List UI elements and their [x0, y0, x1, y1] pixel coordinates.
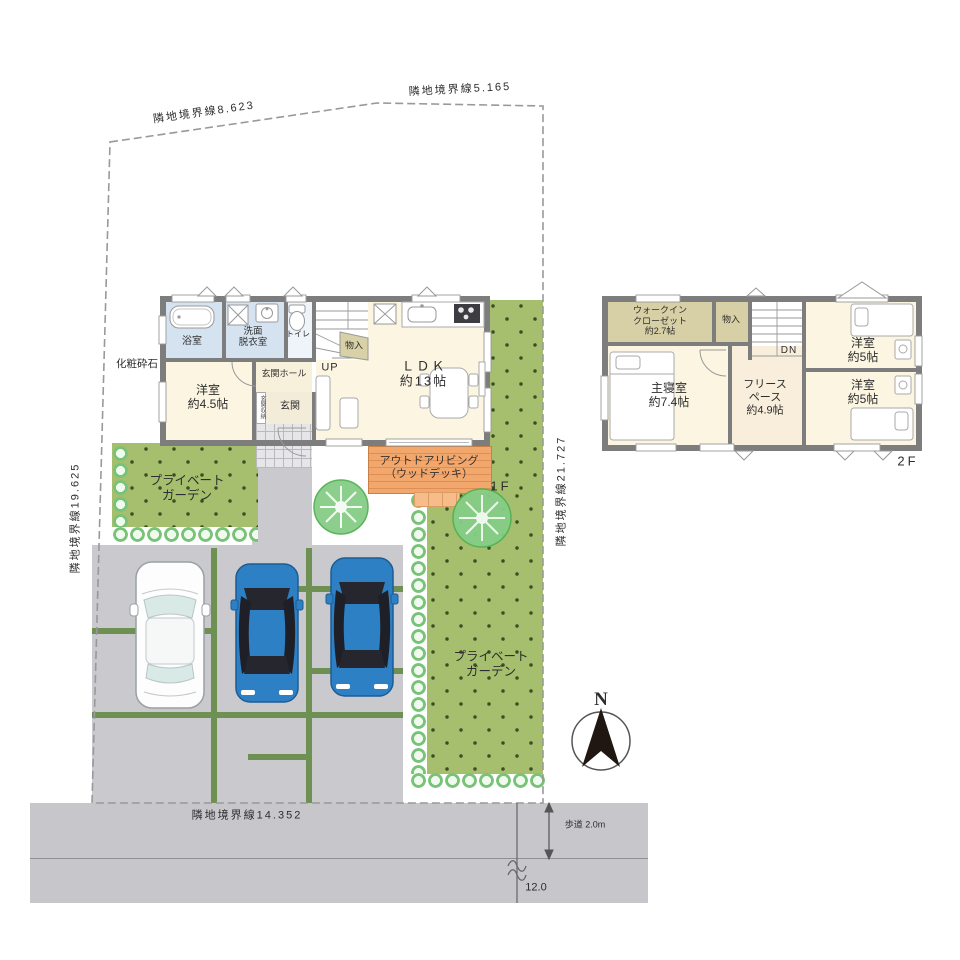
car-white	[130, 562, 210, 708]
north-label: N	[586, 689, 616, 711]
bedroom-bottom-label: 洋室 約5帖	[828, 378, 898, 406]
storage-1f-label: 物入	[339, 341, 369, 352]
boundary-bottom-label: 隣地境界線14.352	[147, 810, 347, 823]
garden-right-label: プライベート ガーデン	[436, 649, 546, 679]
toilet-icon	[289, 305, 305, 331]
entrance-label: 玄関	[270, 401, 310, 413]
free-space-label: フリース ペース 約4.9帖	[730, 379, 800, 418]
garden-left-label: プライベート ガーデン	[132, 473, 242, 503]
sink-icon	[256, 304, 278, 322]
gable-mark-2f	[747, 282, 886, 298]
outdoor-living-label: アウトドアリビング （ウッドデッキ）	[364, 455, 494, 481]
floor1-label: 1F	[481, 478, 521, 493]
site-floor-plan: 隣地境界線8.623 隣地境界線5.165 隣地境界線19.625 隣地境界線2…	[0, 0, 960, 960]
boundary-right-label: 隣地境界線21.727	[556, 381, 569, 601]
entrance-storage-label: 玄関収納	[257, 395, 265, 419]
washroom-label: 洗面 脱衣室	[228, 326, 278, 348]
storage-2f-label: 物入	[716, 315, 746, 326]
bedroom-top-label: 洋室 約5帖	[828, 336, 898, 364]
stairs-down-label: DN	[774, 345, 804, 357]
wic-label: ウォークイン クローゼット 約2.7帖	[615, 305, 705, 337]
vent-marks-1f	[198, 287, 436, 296]
bedroom45-label: 洋室 約4.5帖	[168, 383, 248, 411]
entrance-door-arc	[278, 428, 306, 456]
car-blue-1	[231, 564, 303, 702]
boundary-left-label: 隣地境界線19.625	[70, 408, 83, 628]
master-door-arc	[700, 350, 726, 376]
toilet-label: トイレ	[283, 329, 313, 338]
vent-marks-2f	[735, 451, 892, 460]
road-width-label: 12.0	[511, 882, 561, 895]
hall-label: 玄関ホール	[249, 369, 319, 380]
stairs-up-label: UP	[315, 362, 345, 375]
bathtub-icon	[170, 306, 214, 328]
washing-machine-icon	[228, 305, 248, 325]
bath-label: 浴室	[167, 336, 217, 348]
ldk-label: ＬＤＫ 約13帖	[369, 359, 479, 390]
sidewalk-label: 歩道 2.0m	[545, 820, 625, 831]
master-label: 主寝室 約7.4帖	[629, 381, 709, 409]
gravel-label: 化粧砕石	[92, 358, 182, 370]
car-blue-2	[326, 558, 398, 696]
north-arrow	[572, 708, 630, 770]
refrigerator-icon	[374, 304, 396, 324]
kitchen-counter-icon	[402, 302, 484, 327]
sidewalk-dimension-arrow	[545, 803, 553, 859]
tree-icon	[453, 489, 511, 547]
tree-icon	[314, 480, 368, 534]
floor2-label: 2F	[888, 453, 928, 468]
